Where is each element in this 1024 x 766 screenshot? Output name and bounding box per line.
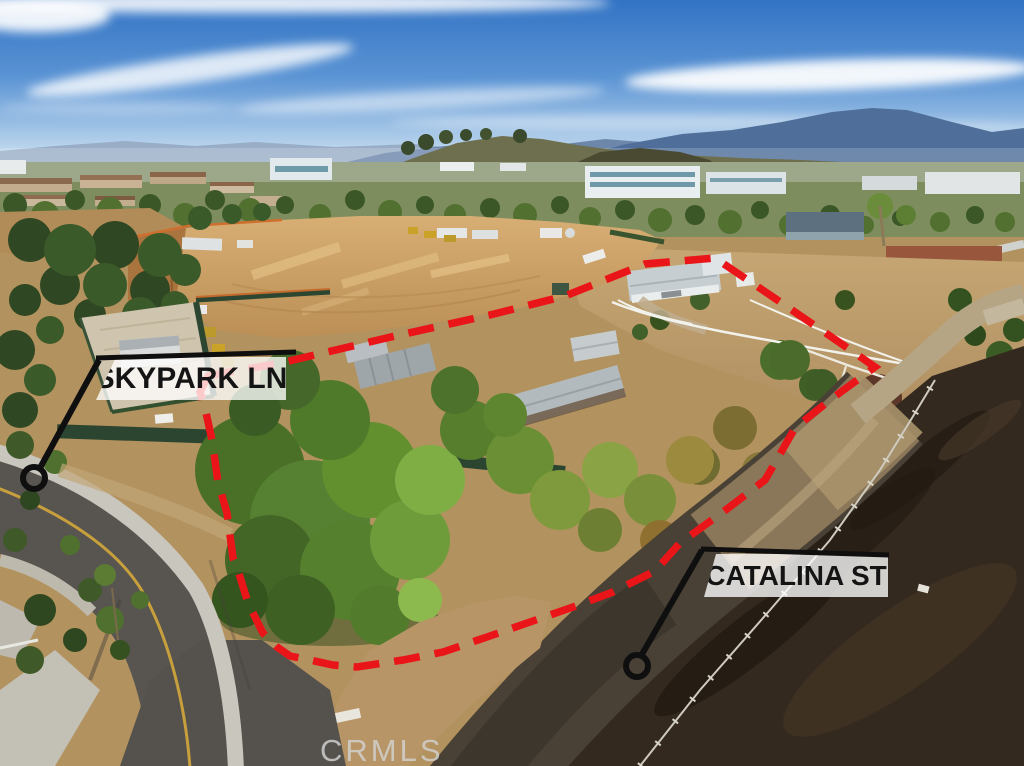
street-label-catalina: CATALINA ST — [704, 554, 888, 597]
street-label-catalina-text: CATALINA ST — [705, 560, 886, 592]
watermark: CRMLS — [320, 733, 444, 766]
aerial-photo: SKYPARK LN CATALINA ST CRMLS — [0, 0, 1024, 766]
street-label-skypark: SKYPARK LN — [96, 357, 286, 400]
street-label-skypark-text: SKYPARK LN — [95, 362, 288, 396]
